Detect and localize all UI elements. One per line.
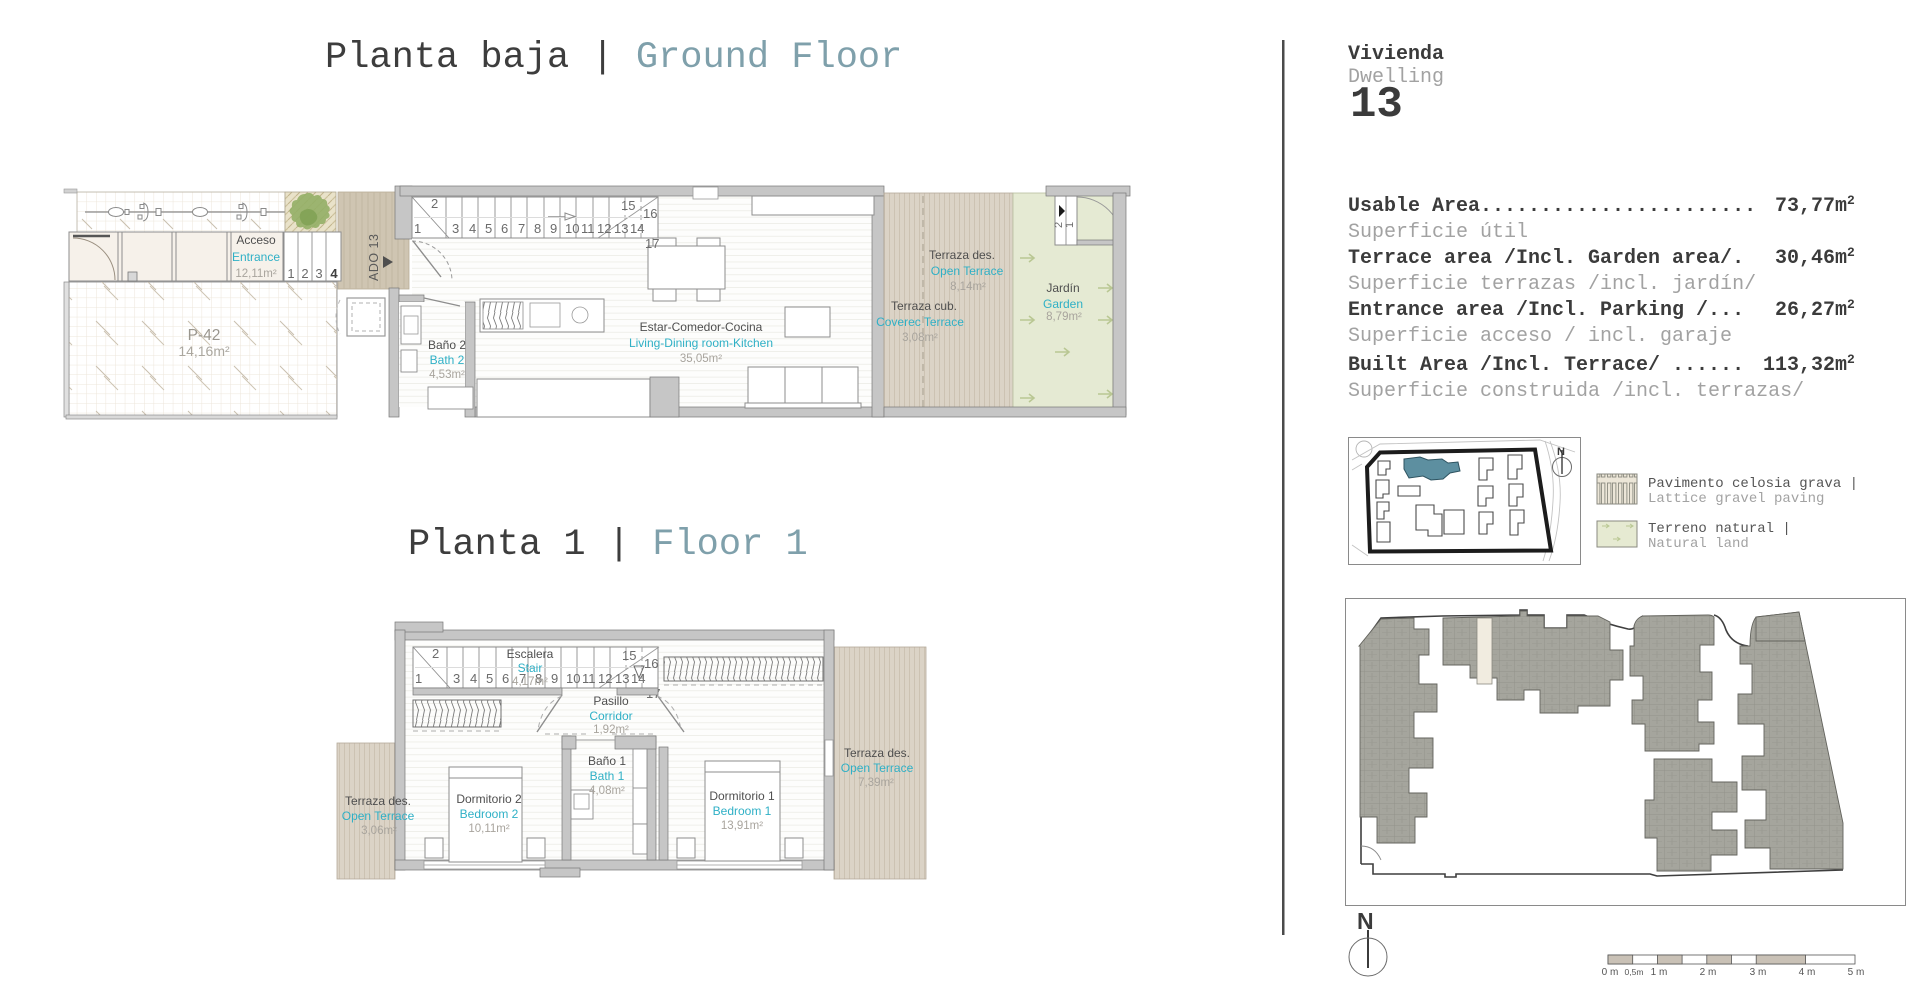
svg-text:4,08m²: 4,08m²: [589, 785, 625, 797]
svg-text:3: 3: [452, 221, 459, 236]
svg-text:Lattice gravel paving: Lattice gravel paving: [1648, 491, 1824, 507]
svg-text:Pasillo: Pasillo: [593, 694, 629, 708]
svg-text:3,08m²: 3,08m²: [902, 332, 938, 344]
svg-text:7: 7: [518, 221, 525, 236]
svg-text:2: 2: [431, 196, 438, 211]
svg-text:11: 11: [582, 671, 596, 686]
svg-text:13: 13: [614, 221, 628, 236]
svg-text:Dormitorio 2: Dormitorio 2: [456, 792, 522, 806]
svg-text:Baño 1: Baño 1: [588, 754, 626, 768]
svg-text:3 m: 3 m: [1750, 967, 1767, 978]
svg-text:Living-Dining room-Kitchen: Living-Dining room-Kitchen: [629, 336, 773, 350]
svg-text:Open Terrace: Open Terrace: [342, 809, 415, 823]
svg-text:10: 10: [565, 221, 579, 236]
svg-text:1: 1: [414, 221, 421, 236]
svg-text:Garden: Garden: [1043, 297, 1083, 311]
svg-text:11: 11: [581, 221, 595, 236]
svg-text:113,32m2: 113,32m2: [1763, 352, 1855, 377]
svg-text:Built Area /Incl. Terrace/ ...: Built Area /Incl. Terrace/ ......: [1348, 354, 1744, 377]
svg-text:Entrance: Entrance: [232, 250, 280, 264]
svg-text:Superficie construida /incl. t: Superficie construida /incl. terrazas/: [1348, 380, 1804, 403]
svg-text:N: N: [1557, 446, 1565, 458]
svg-text:5 m: 5 m: [1848, 967, 1865, 978]
svg-text:10: 10: [566, 671, 580, 686]
svg-text:Entrance area /Incl. Parking /: Entrance area /Incl. Parking /...: [1348, 299, 1744, 322]
svg-text:13,91m²: 13,91m²: [721, 820, 763, 832]
svg-text:17: 17: [645, 236, 659, 251]
svg-text:Open Terrace: Open Terrace: [841, 761, 914, 775]
svg-text:13: 13: [1350, 80, 1403, 130]
svg-text:13: 13: [615, 671, 629, 686]
svg-text:0 m: 0 m: [1602, 967, 1619, 978]
svg-text:Terreno natural |: Terreno natural |: [1648, 521, 1791, 537]
svg-text:Superficie útil: Superficie útil: [1348, 221, 1528, 244]
svg-text:Terraza cub.: Terraza cub.: [891, 299, 957, 313]
svg-text:1,92m²: 1,92m²: [593, 724, 629, 736]
svg-text:ADO 13: ADO 13: [367, 234, 381, 281]
svg-text:P-42: P-42: [188, 327, 221, 344]
svg-text:1: 1: [1064, 222, 1076, 228]
svg-text:Dormitorio 1: Dormitorio 1: [709, 789, 775, 803]
svg-text:4: 4: [330, 266, 338, 281]
svg-text:0,5m: 0,5m: [1625, 967, 1644, 977]
svg-text:Usable Area...................: Usable Area.......................: [1348, 195, 1756, 218]
svg-text:10,11m²: 10,11m²: [468, 823, 510, 835]
svg-text:9: 9: [551, 671, 558, 686]
svg-text:Planta 1 | Floor 1: Planta 1 | Floor 1: [408, 524, 808, 566]
svg-text:Bath 2: Bath 2: [430, 353, 465, 367]
svg-text:15: 15: [621, 198, 635, 213]
svg-text:Coverec Terrace: Coverec Terrace: [876, 315, 964, 329]
svg-text:7,39m²: 7,39m²: [858, 777, 894, 789]
svg-text:Planta baja | Ground Floor: Planta baja | Ground Floor: [325, 37, 902, 79]
svg-text:12,11m²: 12,11m²: [235, 268, 277, 280]
svg-text:8: 8: [534, 221, 541, 236]
svg-text:Terraza des.: Terraza des.: [844, 746, 910, 760]
svg-text:1: 1: [415, 671, 422, 686]
svg-text:4,17m²: 4,17m²: [512, 676, 548, 688]
svg-text:12: 12: [597, 221, 611, 236]
svg-text:12: 12: [598, 671, 612, 686]
svg-text:Bedroom 1: Bedroom 1: [713, 804, 772, 818]
svg-text:Vivienda: Vivienda: [1348, 43, 1444, 66]
svg-text:Acceso: Acceso: [236, 233, 276, 247]
svg-text:1: 1: [287, 266, 294, 281]
svg-text:Terraza des.: Terraza des.: [929, 248, 995, 262]
svg-text:26,27m2: 26,27m2: [1775, 297, 1855, 322]
svg-text:16: 16: [644, 656, 658, 671]
svg-text:6: 6: [502, 671, 509, 686]
svg-text:Jardín: Jardín: [1046, 281, 1079, 295]
svg-text:N: N: [1357, 908, 1374, 934]
svg-text:14: 14: [630, 221, 644, 236]
svg-text:6: 6: [501, 221, 508, 236]
svg-text:4,53m²: 4,53m²: [429, 369, 465, 381]
svg-text:35,05m²: 35,05m²: [680, 353, 722, 365]
svg-text:Bath 1: Bath 1: [590, 769, 625, 783]
svg-text:3,06m²: 3,06m²: [361, 825, 397, 837]
svg-text:Corridor: Corridor: [589, 709, 632, 723]
svg-text:3: 3: [453, 671, 460, 686]
svg-text:8,79m²: 8,79m²: [1046, 311, 1082, 323]
svg-text:30,46m2: 30,46m2: [1775, 245, 1855, 270]
svg-text:73,77m2: 73,77m2: [1775, 193, 1855, 218]
svg-text:Bedroom 2: Bedroom 2: [460, 807, 519, 821]
svg-text:4: 4: [469, 221, 476, 236]
svg-text:Superficie acceso / incl. gara: Superficie acceso / incl. garaje: [1348, 325, 1732, 348]
svg-text:Baño 2: Baño 2: [428, 338, 466, 352]
svg-text:14,16m²: 14,16m²: [178, 343, 230, 359]
svg-text:15: 15: [622, 648, 636, 663]
svg-text:1 m: 1 m: [1651, 967, 1668, 978]
svg-text:5: 5: [485, 221, 492, 236]
svg-text:Terrace area /Incl. Garden are: Terrace area /Incl. Garden area/.: [1348, 247, 1744, 270]
svg-text:4: 4: [470, 671, 477, 686]
svg-text:2: 2: [432, 646, 439, 661]
svg-text:Pavimento celosia grava |: Pavimento celosia grava |: [1648, 476, 1858, 492]
svg-text:16: 16: [643, 206, 657, 221]
svg-text:Superficie terrazas /incl. jar: Superficie terrazas /incl. jardín/: [1348, 273, 1756, 296]
svg-text:Natural land: Natural land: [1648, 536, 1749, 552]
svg-text:5: 5: [486, 671, 493, 686]
svg-text:Open Terrace: Open Terrace: [931, 264, 1004, 278]
svg-text:Terraza des.: Terraza des.: [345, 794, 411, 808]
svg-text:Stair: Stair: [518, 661, 543, 675]
svg-text:9: 9: [550, 221, 557, 236]
svg-text:Estar-Comedor-Cocina: Estar-Comedor-Cocina: [640, 320, 763, 334]
svg-text:3: 3: [315, 266, 322, 281]
svg-text:Escalera: Escalera: [507, 647, 554, 661]
svg-text:14: 14: [631, 671, 645, 686]
svg-text:4 m: 4 m: [1799, 967, 1816, 978]
svg-text:8,14m²: 8,14m²: [950, 281, 986, 293]
svg-text:2 m: 2 m: [1700, 967, 1717, 978]
svg-text:2: 2: [301, 266, 308, 281]
